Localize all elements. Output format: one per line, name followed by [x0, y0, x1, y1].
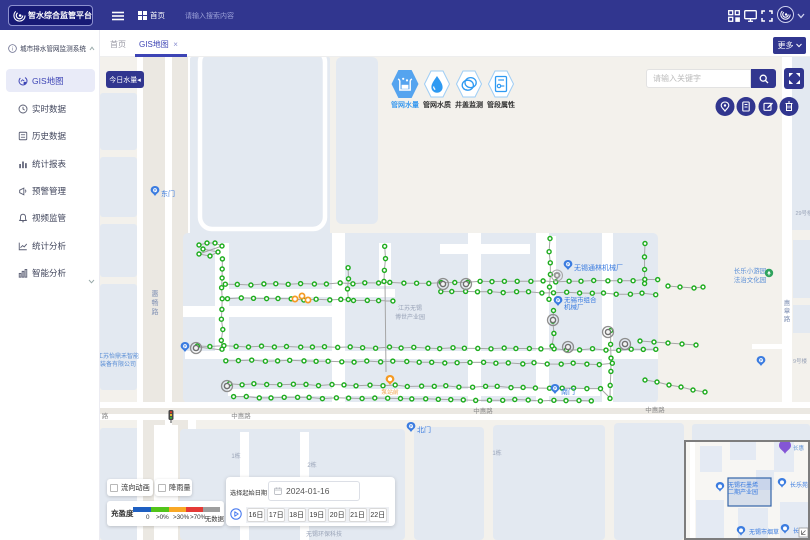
svg-text:无锡市烟草: 无锡市烟草: [749, 528, 779, 536]
svg-text:畅: 畅: [152, 298, 159, 307]
svg-text:无锡环保科技: 无锡环保科技: [306, 530, 342, 538]
svg-text:长乐苑: 长乐苑: [790, 481, 808, 489]
svg-text:1栋: 1栋: [492, 449, 501, 457]
svg-text:1栋: 1栋: [231, 452, 240, 460]
svg-text:惠: 惠: [152, 289, 159, 298]
svg-text:i: i: [12, 46, 13, 52]
svg-text:2栋: 2栋: [307, 461, 316, 469]
svg-text:章: 章: [784, 306, 791, 315]
svg-text:路: 路: [152, 307, 159, 316]
svg-text:井盖监测: 井盖监测: [455, 100, 483, 109]
svg-text:路: 路: [784, 314, 791, 323]
svg-text:装备有限公司: 装备有限公司: [100, 360, 136, 368]
svg-text:无锡市组合: 无锡市组合: [564, 295, 597, 304]
svg-text:法治文化园: 法治文化园: [734, 275, 767, 284]
svg-text:博世产业园: 博世产业园: [395, 313, 425, 321]
svg-text:二期产业园: 二期产业园: [728, 488, 758, 496]
svg-text:泵站前: 泵站前: [381, 388, 399, 396]
svg-text:北门: 北门: [417, 425, 431, 434]
svg-text:长乐小游园: 长乐小游园: [734, 266, 767, 275]
svg-text:中惠路: 中惠路: [473, 406, 493, 415]
svg-text:中惠路: 中惠路: [645, 405, 665, 414]
svg-text:管网水质: 管网水质: [423, 100, 451, 109]
svg-text:江苏怡鼎禾智能: 江苏怡鼎禾智能: [100, 352, 139, 360]
svg-text:江苏无锡: 江苏无锡: [398, 304, 422, 312]
svg-text:管段属性: 管段属性: [487, 100, 515, 109]
svg-text:管网水量: 管网水量: [391, 100, 419, 109]
svg-text:惠: 惠: [784, 298, 791, 307]
svg-text:29号楼: 29号楼: [795, 209, 810, 217]
svg-text:南门: 南门: [561, 387, 575, 396]
svg-text:无锡通林机械厂: 无锡通林机械厂: [574, 263, 623, 272]
svg-text:无锡石墨烯: 无锡石墨烯: [728, 481, 758, 489]
svg-text:路: 路: [102, 411, 109, 420]
svg-text:机械厂: 机械厂: [564, 302, 584, 311]
svg-text:9号楼: 9号楼: [793, 357, 808, 365]
svg-text:长惠: 长惠: [793, 444, 805, 452]
svg-text:东门: 东门: [161, 189, 175, 198]
svg-text:中惠路: 中惠路: [231, 411, 251, 420]
